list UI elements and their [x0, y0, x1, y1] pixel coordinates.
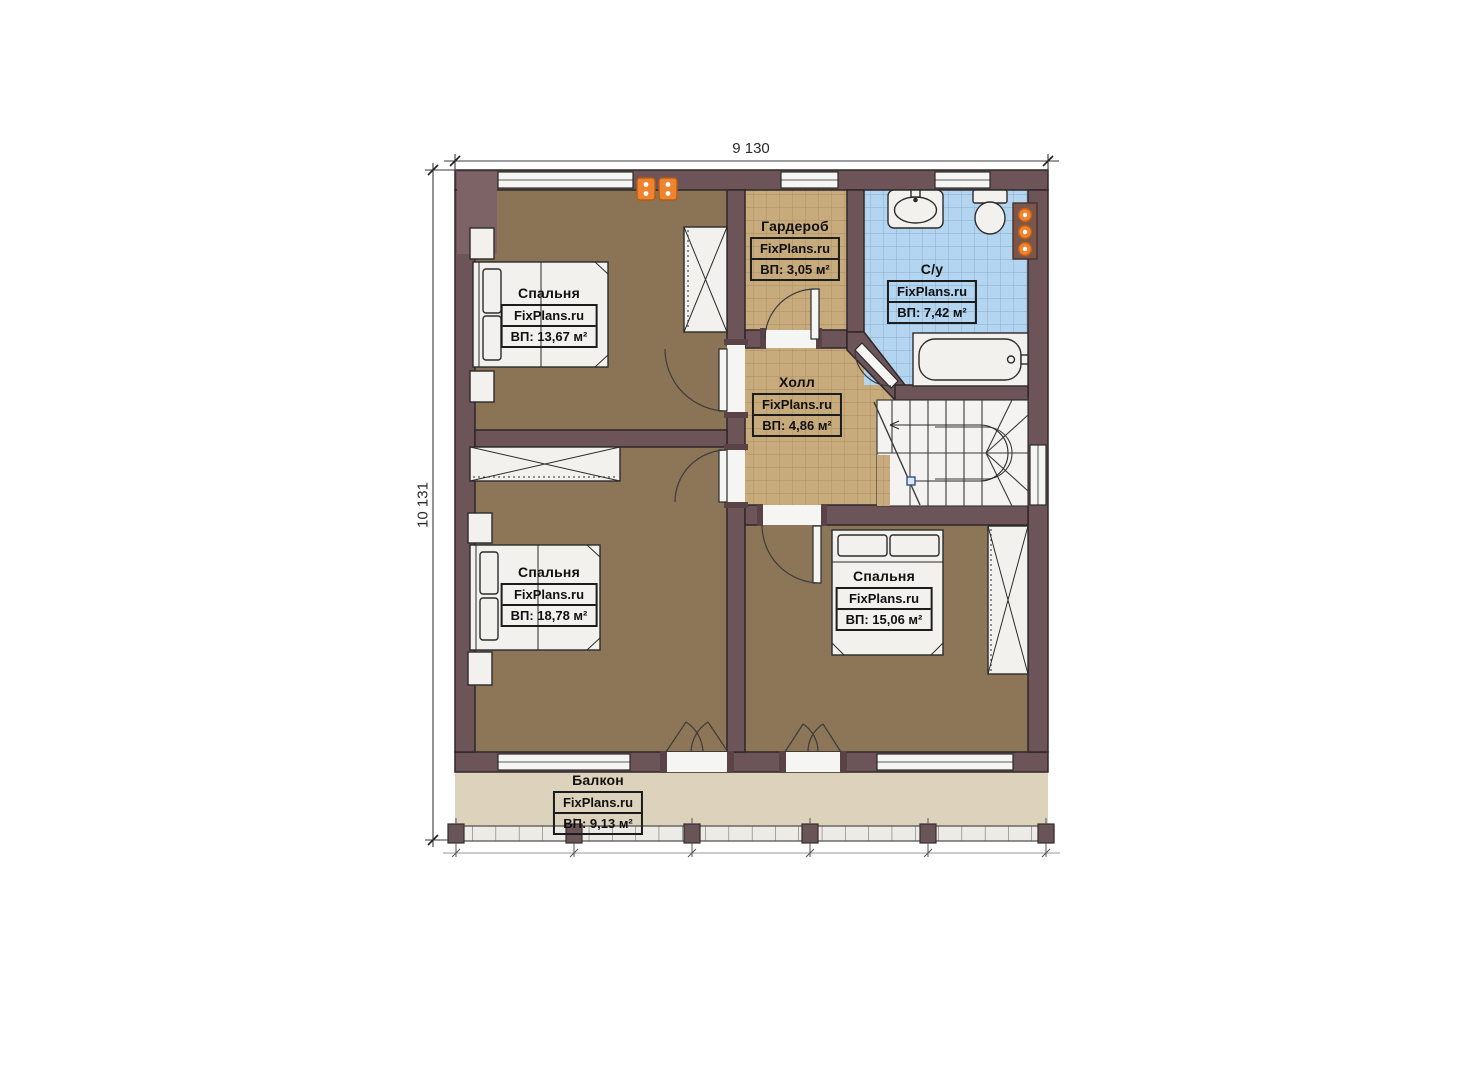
- room-area: ВП: 3,05 м²: [752, 260, 838, 279]
- door-jamb: [727, 751, 734, 773]
- brand-watermark: FixPlans.ru: [503, 306, 596, 327]
- room-label-hall: Холл FixPlans.ru ВП: 4,86 м²: [752, 374, 842, 437]
- wall-interior: [822, 505, 1028, 525]
- dimension-height-label: 10 131: [415, 482, 432, 528]
- sink: [888, 190, 943, 228]
- door-jamb: [724, 412, 748, 418]
- door-jamb: [724, 502, 748, 508]
- door-jamb: [660, 751, 667, 773]
- room-info-box: FixPlans.ru ВП: 18,78 м²: [501, 583, 598, 627]
- wall-interior: [475, 430, 727, 447]
- room-info-box: FixPlans.ru ВП: 3,05 м²: [750, 237, 840, 281]
- wall-interior: [727, 190, 745, 345]
- door-opening: [727, 345, 745, 413]
- door-jamb: [821, 504, 827, 526]
- nightstand: [468, 513, 492, 543]
- door-opening: [765, 330, 817, 348]
- balcony-door-opening: [666, 752, 728, 772]
- room-info-box: FixPlans.ru ВП: 9,13 м²: [553, 791, 643, 835]
- room-area: ВП: 18,78 м²: [503, 606, 596, 625]
- door-opening: [727, 450, 745, 503]
- door-jamb: [757, 504, 763, 526]
- room-name: С/у: [887, 261, 977, 277]
- wardrobe-closet: [988, 526, 1028, 674]
- toilet: [973, 190, 1007, 234]
- room-label-bedroom-2: Спальня FixPlans.ru ВП: 18,78 м²: [501, 564, 598, 627]
- towel-radiator: [1013, 203, 1037, 259]
- door-jamb: [724, 339, 748, 345]
- railing-post: [684, 824, 700, 843]
- room-info-box: FixPlans.ru ВП: 7,42 м²: [887, 280, 977, 324]
- brand-watermark: FixPlans.ru: [503, 585, 596, 606]
- room-area: ВП: 7,42 м²: [889, 303, 975, 322]
- door-jamb: [840, 751, 847, 773]
- wall-interior: [727, 503, 745, 752]
- room-name: Холл: [752, 374, 842, 390]
- wardrobe-closet: [470, 447, 620, 481]
- door-opening: [762, 505, 822, 525]
- floor-plan-canvas: [0, 0, 1473, 1080]
- bathtub: [913, 333, 1028, 386]
- railing-post: [802, 824, 818, 843]
- room-name: Гардероб: [750, 218, 840, 234]
- staircase: [874, 400, 1028, 506]
- railing-post: [448, 824, 464, 843]
- railing-post: [920, 824, 936, 843]
- nightstand: [470, 371, 494, 402]
- floor-plan: 9 130 10 131 Спальня FixPlans.ru ВП: 13,…: [0, 0, 1473, 1080]
- room-label-bedroom-3: Спальня FixPlans.ru ВП: 15,06 м²: [836, 568, 933, 631]
- room-label-bathroom: С/у FixPlans.ru ВП: 7,42 м²: [887, 261, 977, 324]
- room-name: Балкон: [553, 772, 643, 788]
- wardrobe-closet: [684, 227, 727, 332]
- room-area: ВП: 9,13 м²: [555, 814, 641, 833]
- brand-watermark: FixPlans.ru: [752, 239, 838, 260]
- railing-post: [1038, 824, 1054, 843]
- room-name: Спальня: [501, 564, 598, 580]
- wall-interior: [895, 385, 1028, 400]
- room-label-wardrobe: Гардероб FixPlans.ru ВП: 3,05 м²: [750, 218, 840, 281]
- room-name: Спальня: [836, 568, 933, 584]
- room-area: ВП: 13,67 м²: [503, 327, 596, 346]
- room-area: ВП: 15,06 м²: [838, 610, 931, 629]
- room-label-balcony: Балкон FixPlans.ru ВП: 9,13 м²: [553, 772, 643, 835]
- nightstand: [468, 652, 492, 685]
- dimension-width-label: 9 130: [732, 140, 770, 157]
- room-name: Спальня: [501, 285, 598, 301]
- brand-watermark: FixPlans.ru: [555, 793, 641, 814]
- balcony-floor: [455, 772, 1048, 826]
- wall-interior: [847, 190, 864, 332]
- room-label-bedroom-1: Спальня FixPlans.ru ВП: 13,67 м²: [501, 285, 598, 348]
- stair-start-marker: [907, 477, 915, 485]
- brand-watermark: FixPlans.ru: [754, 395, 840, 416]
- room-area: ВП: 4,86 м²: [754, 416, 840, 435]
- door-jamb: [779, 751, 786, 773]
- balcony-door-opening: [785, 752, 841, 772]
- room-info-box: FixPlans.ru ВП: 15,06 м²: [836, 587, 933, 631]
- door-jamb: [724, 444, 748, 450]
- room-info-box: FixPlans.ru ВП: 13,67 м²: [501, 304, 598, 348]
- brand-watermark: FixPlans.ru: [838, 589, 931, 610]
- nightstand: [470, 228, 494, 259]
- brand-watermark: FixPlans.ru: [889, 282, 975, 303]
- room-info-box: FixPlans.ru ВП: 4,86 м²: [752, 393, 842, 437]
